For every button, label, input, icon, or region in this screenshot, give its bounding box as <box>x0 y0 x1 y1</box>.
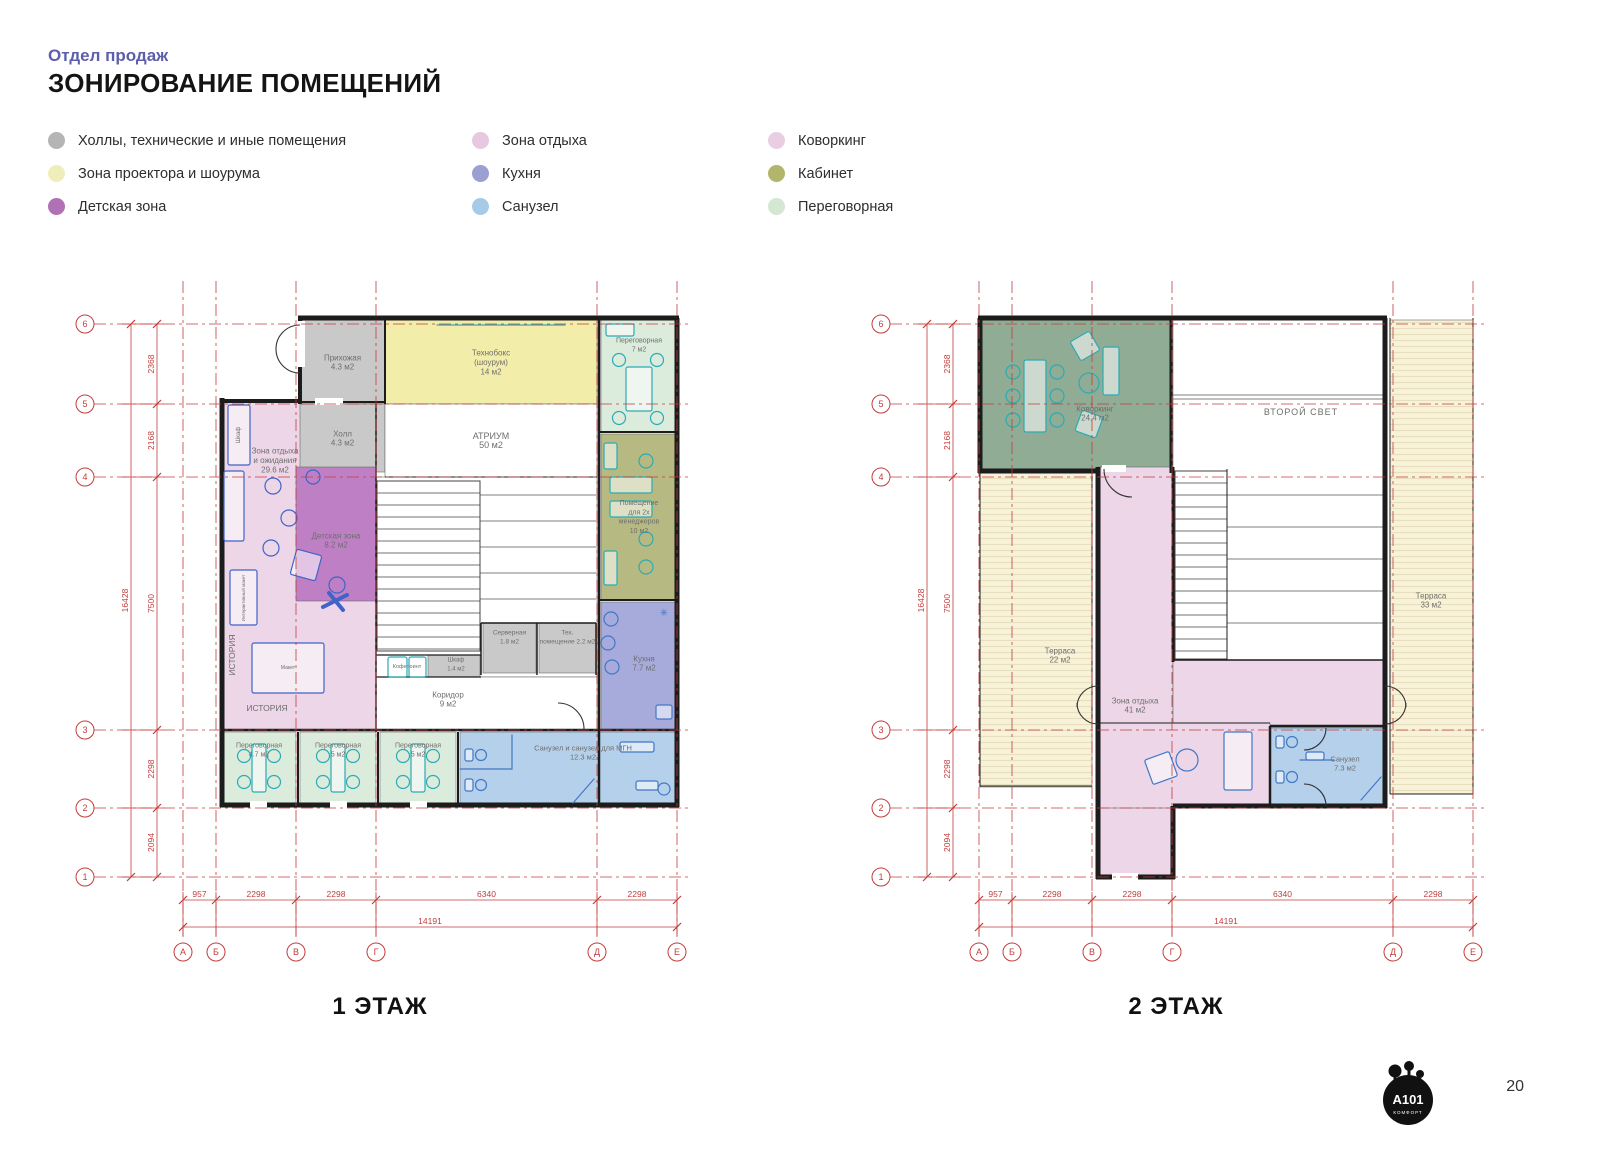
dim-value: 6340 <box>1273 889 1292 899</box>
axis-number: 6 <box>878 319 883 329</box>
room-zona-otdyha-arm <box>1173 660 1385 728</box>
room-label: Интерактивный макет <box>240 574 246 622</box>
furniture-icon <box>606 324 634 336</box>
legend-color-dot <box>472 132 489 149</box>
legend-column: Холлы, технические и иные помещенияЗона … <box>48 130 472 229</box>
room-label: Санузел7.3 м2 <box>1330 754 1359 772</box>
slide-sheet: Отдел продаж ЗОНИРОВАНИЕ ПОМЕЩЕНИЙ Холлы… <box>0 0 1600 1159</box>
legend-color-dot <box>768 198 785 215</box>
room-label: Холл4.3 м2 <box>331 429 355 447</box>
dim-value: 2094 <box>146 833 156 852</box>
furniture-icon <box>465 749 473 761</box>
room-label: Коворкинг24.4 м2 <box>1076 404 1114 422</box>
dim-value: 7500 <box>146 594 156 613</box>
room-label: Кухня7.7 м2 <box>632 654 656 672</box>
axis-number: 4 <box>878 472 883 482</box>
dim-value: 2298 <box>942 759 952 778</box>
axis-number: 1 <box>878 872 883 882</box>
room-terrasa-22 <box>980 473 1092 787</box>
legend-color-dot <box>768 132 785 149</box>
axis-letter: Д <box>1390 947 1396 957</box>
furniture-icon <box>604 551 617 585</box>
dim-value: 2368 <box>942 354 952 373</box>
dim-value: 2298 <box>1043 889 1062 899</box>
furniture-icon <box>1103 347 1119 395</box>
legend-color-dot <box>48 198 65 215</box>
dim-value: 2168 <box>146 431 156 450</box>
dim-value: 2298 <box>327 889 346 899</box>
floor-plan-svg: Терраса22 м2Терраса33 м2Коворкинг24.4 м2… <box>856 255 1496 965</box>
room-label: Шкаф <box>236 427 242 444</box>
room-label: ИСТОРИЯ <box>227 634 237 675</box>
legend-column: Зона отдыхаКухняСанузел <box>472 130 768 229</box>
axis-letter: Д <box>594 947 600 957</box>
legend-label: Детская зона <box>78 199 166 215</box>
axis-letter: Б <box>1009 947 1015 957</box>
logo-text: А101 <box>1392 1092 1423 1107</box>
legend-column: КоворкингКабинетПереговорная <box>768 130 1028 229</box>
axis-number: 2 <box>878 803 883 813</box>
legend-item: Детская зона <box>48 196 472 217</box>
furniture-icon <box>1306 752 1324 760</box>
legend-color-dot <box>48 165 65 182</box>
floor-plan-1: ✳Зона отдыхаи ожидания29.6 м2Прихожая4.3… <box>60 255 700 965</box>
axis-number: 3 <box>878 725 883 735</box>
floor-1-title: 1 ЭТАЖ <box>60 993 700 1021</box>
dim-value: 957 <box>988 889 1002 899</box>
furniture-icon <box>636 781 658 790</box>
legend-label: Санузел <box>502 199 559 215</box>
legend-color-dot <box>48 132 65 149</box>
legend-label: Кабинет <box>798 166 853 182</box>
legend-color-dot <box>768 165 785 182</box>
dim-value: 2298 <box>628 889 647 899</box>
legend-label: Коворкинг <box>798 133 866 149</box>
axis-letter: Г <box>1170 947 1175 957</box>
legend-item: Холлы, технические и иные помещения <box>48 130 472 151</box>
legend-color-dot <box>472 165 489 182</box>
room-label: Макет <box>281 665 296 671</box>
dim-value: 2298 <box>1424 889 1443 899</box>
legend-item: Кухня <box>472 163 768 184</box>
logo-caption: КОМФОРТ <box>1393 1110 1422 1115</box>
axis-number: 1 <box>82 872 87 882</box>
dim-value: 2368 <box>146 354 156 373</box>
axis-number: 4 <box>82 472 87 482</box>
dim-value: 2168 <box>942 431 952 450</box>
furniture-icon <box>1276 736 1284 748</box>
axis-letter: Б <box>213 947 219 957</box>
axis-letter: А <box>976 947 982 957</box>
axis-number: 5 <box>878 399 883 409</box>
legend-item: Кабинет <box>768 163 1028 184</box>
dim-value: 957 <box>192 889 206 899</box>
axis-number: 3 <box>82 725 87 735</box>
dim-total: 14191 <box>1214 916 1238 926</box>
dim-value: 2298 <box>1123 889 1142 899</box>
floor-plan-svg: ✳Зона отдыхаи ожидания29.6 м2Прихожая4.3… <box>60 255 700 965</box>
axis-letter: Е <box>1470 947 1476 957</box>
dim-total: 16428 <box>916 588 926 612</box>
dim-value: 2298 <box>247 889 266 899</box>
axis-number: 6 <box>82 319 87 329</box>
legend-item: Санузел <box>472 196 768 217</box>
legend-label: Переговорная <box>798 199 893 215</box>
dim-total: 14191 <box>418 916 442 926</box>
furniture-icon <box>224 471 244 541</box>
legend-label: Кухня <box>502 166 541 182</box>
stairs <box>377 481 480 651</box>
axis-letter: Г <box>374 947 379 957</box>
room-label: Кофепоинт <box>393 664 422 670</box>
floor-2-title: 2 ЭТАЖ <box>856 993 1496 1021</box>
a101-logo-svg: А101КОМФОРТ <box>1376 1056 1442 1132</box>
floor-plan-2: Терраса22 м2Терраса33 м2Коворкинг24.4 м2… <box>856 255 1496 965</box>
dim-value: 6340 <box>477 889 496 899</box>
stairs <box>1175 471 1227 659</box>
furniture-icon <box>604 443 617 469</box>
furniture-icon <box>1224 732 1252 790</box>
legend-label: Зона отдыха <box>502 133 587 149</box>
legend-label: Холлы, технические и иные помещения <box>78 133 346 149</box>
furniture-icon <box>656 705 672 719</box>
axis-number: 5 <box>82 399 87 409</box>
furniture-icon <box>610 477 652 493</box>
legend-item: Коворкинг <box>768 130 1028 151</box>
a101-logo: А101КОМФОРТ <box>1376 1056 1442 1132</box>
dim-value: 2094 <box>942 833 952 852</box>
page-number: 20 <box>1506 1078 1524 1096</box>
page-title: ЗОНИРОВАНИЕ ПОМЕЩЕНИЙ <box>48 68 441 99</box>
section-label: Отдел продаж <box>48 46 168 66</box>
furniture-icon <box>465 779 473 791</box>
axis-letter: А <box>180 947 186 957</box>
axis-letter: Е <box>674 947 680 957</box>
furniture-icon <box>1024 360 1046 432</box>
legend-item: Зона отдыха <box>472 130 768 151</box>
room-terrasa-33 <box>1390 320 1473 794</box>
legend-color-dot <box>472 198 489 215</box>
room-label: ВТОРОЙ СВЕТ <box>1264 406 1338 417</box>
furniture-icon <box>1276 771 1284 783</box>
room-zona-otdyha-41 <box>1098 467 1173 877</box>
legend: Холлы, технические и иные помещенияЗона … <box>48 130 1028 229</box>
axis-letter: В <box>1089 947 1095 957</box>
legend-label: Зона проектора и шоурума <box>78 166 260 182</box>
dim-value: 2298 <box>146 759 156 778</box>
snowflake-icon: ✳ <box>660 608 668 619</box>
room-label: ИСТОРИЯ <box>246 703 287 713</box>
legend-item: Зона проектора и шоурума <box>48 163 472 184</box>
legend-item: Переговорная <box>768 196 1028 217</box>
dim-value: 7500 <box>942 594 952 613</box>
dim-total: 16428 <box>120 588 130 612</box>
axis-number: 2 <box>82 803 87 813</box>
axis-letter: В <box>293 947 299 957</box>
